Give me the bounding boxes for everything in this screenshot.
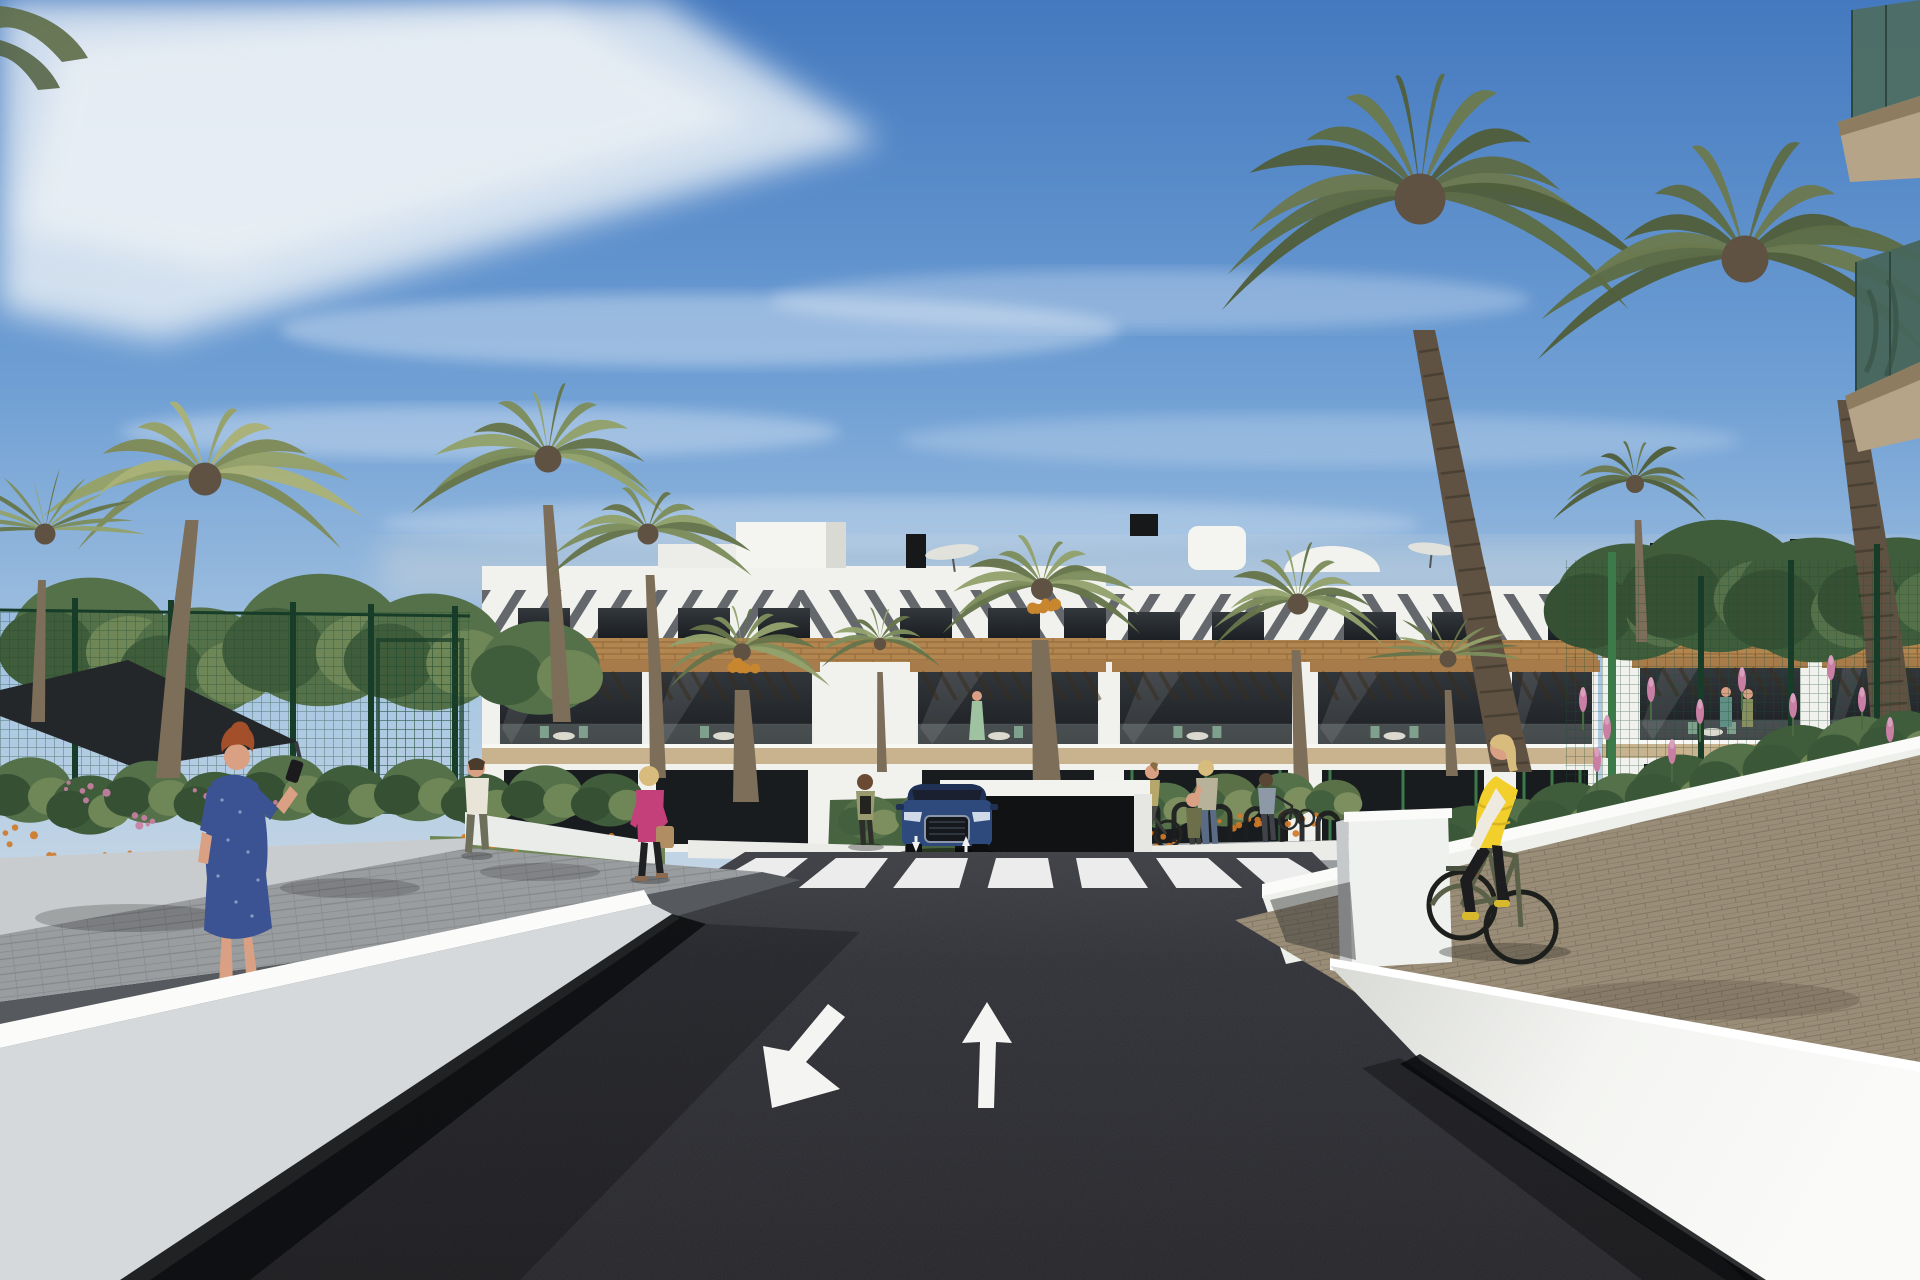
tree-shadow xyxy=(480,863,600,881)
cyclist-shoe xyxy=(1494,900,1510,907)
cloud-streak xyxy=(770,270,1530,330)
garage-pier xyxy=(1134,794,1152,854)
child-jacket xyxy=(1186,808,1202,838)
roof-vent xyxy=(1130,514,1158,536)
cyclist-shoe xyxy=(1462,912,1479,920)
car-mirror-right xyxy=(990,804,998,810)
tree-shadow xyxy=(280,878,420,898)
rendering-canvas xyxy=(0,0,1920,1280)
tree-shadow xyxy=(35,904,225,932)
planter-wall xyxy=(1348,814,1452,968)
roof-box-rounded xyxy=(1188,526,1246,570)
car-grille xyxy=(925,816,969,842)
roof-stair-shade xyxy=(826,522,846,568)
roof-chimney xyxy=(906,534,926,568)
car-mirror-left xyxy=(896,804,904,810)
car-wheel-right xyxy=(972,844,988,852)
crosswalk-stripe xyxy=(988,858,1054,888)
child-head xyxy=(1186,793,1200,807)
street-scene-rendering xyxy=(0,0,1920,1280)
car-suv xyxy=(896,784,998,860)
